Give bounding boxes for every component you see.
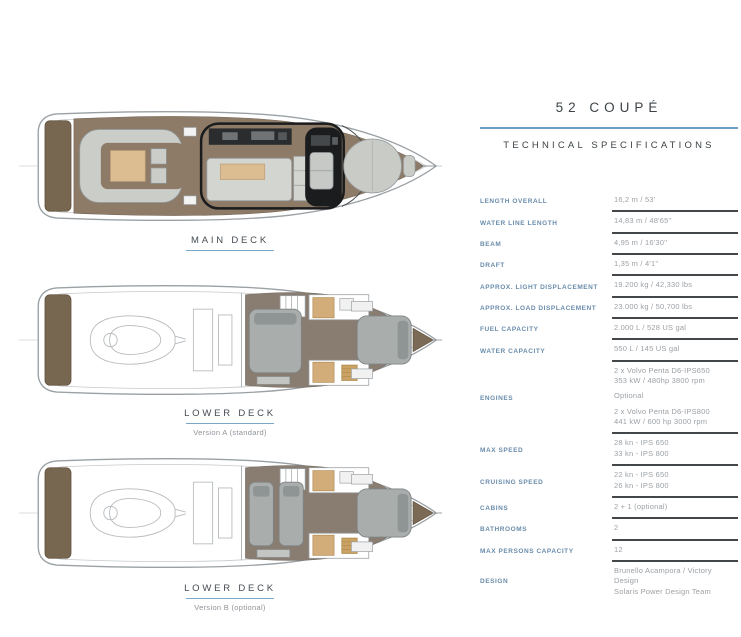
spec-value: 16,2 m / 53' xyxy=(612,191,738,212)
spec-value: 22 kn - IPS 65026 kn - IPS 800 xyxy=(612,466,738,498)
spec-value: 1,35 m / 4'1'' xyxy=(612,255,738,276)
spec-row: BATHROOMS2 xyxy=(480,519,738,540)
lower-deck-a-underline xyxy=(186,423,274,424)
main-deck-label: MAIN DECK xyxy=(0,235,460,246)
spec-value-line: 12 xyxy=(614,545,738,555)
spec-row: DESIGNBrunello Acampora / Victory Design… xyxy=(480,562,738,602)
spec-label: FUEL CAPACITY xyxy=(480,326,612,333)
spec-row: MAX PERSONS CAPACITY12 xyxy=(480,541,738,562)
lower-deck-b-version-label: Version B (optional) xyxy=(0,603,460,612)
spec-row: DRAFT1,35 m / 4'1'' xyxy=(480,255,738,276)
lower-deck-b-underline xyxy=(186,598,274,599)
spec-value: 2.000 L / 528 US gal xyxy=(612,319,738,340)
spec-value-line: 2 xyxy=(614,523,738,533)
model-title: 52 COUPÉ xyxy=(480,100,738,115)
spec-value-line: 19.200 kg / 42,330 lbs xyxy=(614,280,738,290)
spec-value: 19.200 kg / 42,330 lbs xyxy=(612,276,738,297)
spec-value-line: 441 kW / 600 hp 3000 rpm xyxy=(614,417,738,427)
main-deck-underline xyxy=(186,250,274,251)
spec-value: 550 L / 145 US gal xyxy=(612,340,738,361)
spec-value-line: Solaris Power Design Team xyxy=(614,587,738,597)
spec-row: FUEL CAPACITY2.000 L / 528 US gal xyxy=(480,319,738,340)
spec-row: APPROX. LOAD DISPLACEMENT23.000 kg / 50,… xyxy=(480,298,738,319)
spec-rows: LENGTH OVERALL16,2 m / 53'WATER LINE LEN… xyxy=(480,191,738,602)
spec-value-line: 23.000 kg / 50,700 lbs xyxy=(614,302,738,312)
spec-value-line: 16,2 m / 53' xyxy=(614,195,738,205)
spec-value-line: 2 x Volvo Penta D6-IPS800 xyxy=(614,407,738,417)
spec-label: WATER LINE LENGTH xyxy=(480,220,612,227)
spec-value-line: 550 L / 145 US gal xyxy=(614,344,738,354)
spec-row: APPROX. LIGHT DISPLACEMENT19.200 kg / 42… xyxy=(480,276,738,297)
spec-row: ENGINES2 x Volvo Penta D6-IPS650353 kW /… xyxy=(480,362,738,435)
section-title: TECHNICAL SPECIFICATIONS xyxy=(480,140,738,151)
spec-row: WATER CAPACITY550 L / 145 US gal xyxy=(480,340,738,361)
spec-value: 12 xyxy=(612,541,738,562)
spec-value: 2 x Volvo Penta D6-IPS650353 kW / 480hp … xyxy=(612,362,738,435)
brochure-page: { "header": { "title": "52 COUPÉ", "subt… xyxy=(0,0,741,637)
spec-label: MAX PERSONS CAPACITY xyxy=(480,548,612,555)
lower-deck-a-label: LOWER DECK xyxy=(0,408,460,419)
spec-value-line: 2 + 1 (optional) xyxy=(614,502,738,512)
spec-value: 14,83 m / 48'65'' xyxy=(612,212,738,233)
spec-value-line: 2.000 L / 528 US gal xyxy=(614,323,738,333)
spec-label: DESIGN xyxy=(480,578,612,585)
main-deck-plan-illustration xyxy=(18,102,442,230)
spec-value-line: 22 kn - IPS 650 xyxy=(614,470,738,480)
lower-deck-a-plan-illustration xyxy=(18,276,442,404)
spec-value-line: Brunello Acampora / Victory Design xyxy=(614,566,738,587)
spec-value: Brunello Acampora / Victory DesignSolari… xyxy=(612,562,738,602)
spec-row: CRUISING SPEED22 kn - IPS 65026 kn - IPS… xyxy=(480,466,738,498)
spec-label: ENGINES xyxy=(480,395,612,402)
spec-label: BEAM xyxy=(480,241,612,248)
spec-label: MAX SPEED xyxy=(480,447,612,454)
spec-value-line: 26 kn - IPS 800 xyxy=(614,481,738,491)
spec-row: LENGTH OVERALL16,2 m / 53' xyxy=(480,191,738,212)
spec-value-line: 14,83 m / 48'65'' xyxy=(614,216,738,226)
spec-value: 28 kn - IPS 65033 kn - IPS 800 xyxy=(612,434,738,466)
spec-row: MAX SPEED28 kn - IPS 65033 kn - IPS 800 xyxy=(480,434,738,466)
spec-row: CABINS2 + 1 (optional) xyxy=(480,498,738,519)
accent-divider xyxy=(480,127,738,129)
spec-label: CRUISING SPEED xyxy=(480,479,612,486)
spec-label: APPROX. LOAD DISPLACEMENT xyxy=(480,305,612,312)
spec-label: CABINS xyxy=(480,505,612,512)
spec-value-line: 28 kn - IPS 650 xyxy=(614,438,738,448)
spec-value-line: 353 kW / 480hp 3800 rpm xyxy=(614,376,738,386)
spec-label: LENGTH OVERALL xyxy=(480,198,612,205)
spec-label: DRAFT xyxy=(480,262,612,269)
spec-label: APPROX. LIGHT DISPLACEMENT xyxy=(480,284,612,291)
lower-deck-b-plan-illustration xyxy=(18,449,442,577)
spec-value: 23.000 kg / 50,700 lbs xyxy=(612,298,738,319)
spec-value-line: Optional xyxy=(614,391,738,401)
spec-value-line: 4,95 m / 16'30'' xyxy=(614,238,738,248)
technical-specifications-panel: 52 COUPÉ TECHNICAL SPECIFICATIONS LENGTH… xyxy=(480,100,738,602)
spec-label: BATHROOMS xyxy=(480,526,612,533)
spec-value-line: 1,35 m / 4'1'' xyxy=(614,259,738,269)
lower-deck-a-version-label: Version A (standard) xyxy=(0,428,460,437)
spec-row: WATER LINE LENGTH14,83 m / 48'65'' xyxy=(480,212,738,233)
spec-label: WATER CAPACITY xyxy=(480,348,612,355)
spec-value-line: 2 x Volvo Penta D6-IPS650 xyxy=(614,366,738,376)
lower-deck-b-label: LOWER DECK xyxy=(0,583,460,594)
spec-row: BEAM4,95 m / 16'30'' xyxy=(480,234,738,255)
spec-value-line: 33 kn - IPS 800 xyxy=(614,449,738,459)
spec-value: 2 + 1 (optional) xyxy=(612,498,738,519)
spec-value: 2 xyxy=(612,519,738,540)
spec-value: 4,95 m / 16'30'' xyxy=(612,234,738,255)
